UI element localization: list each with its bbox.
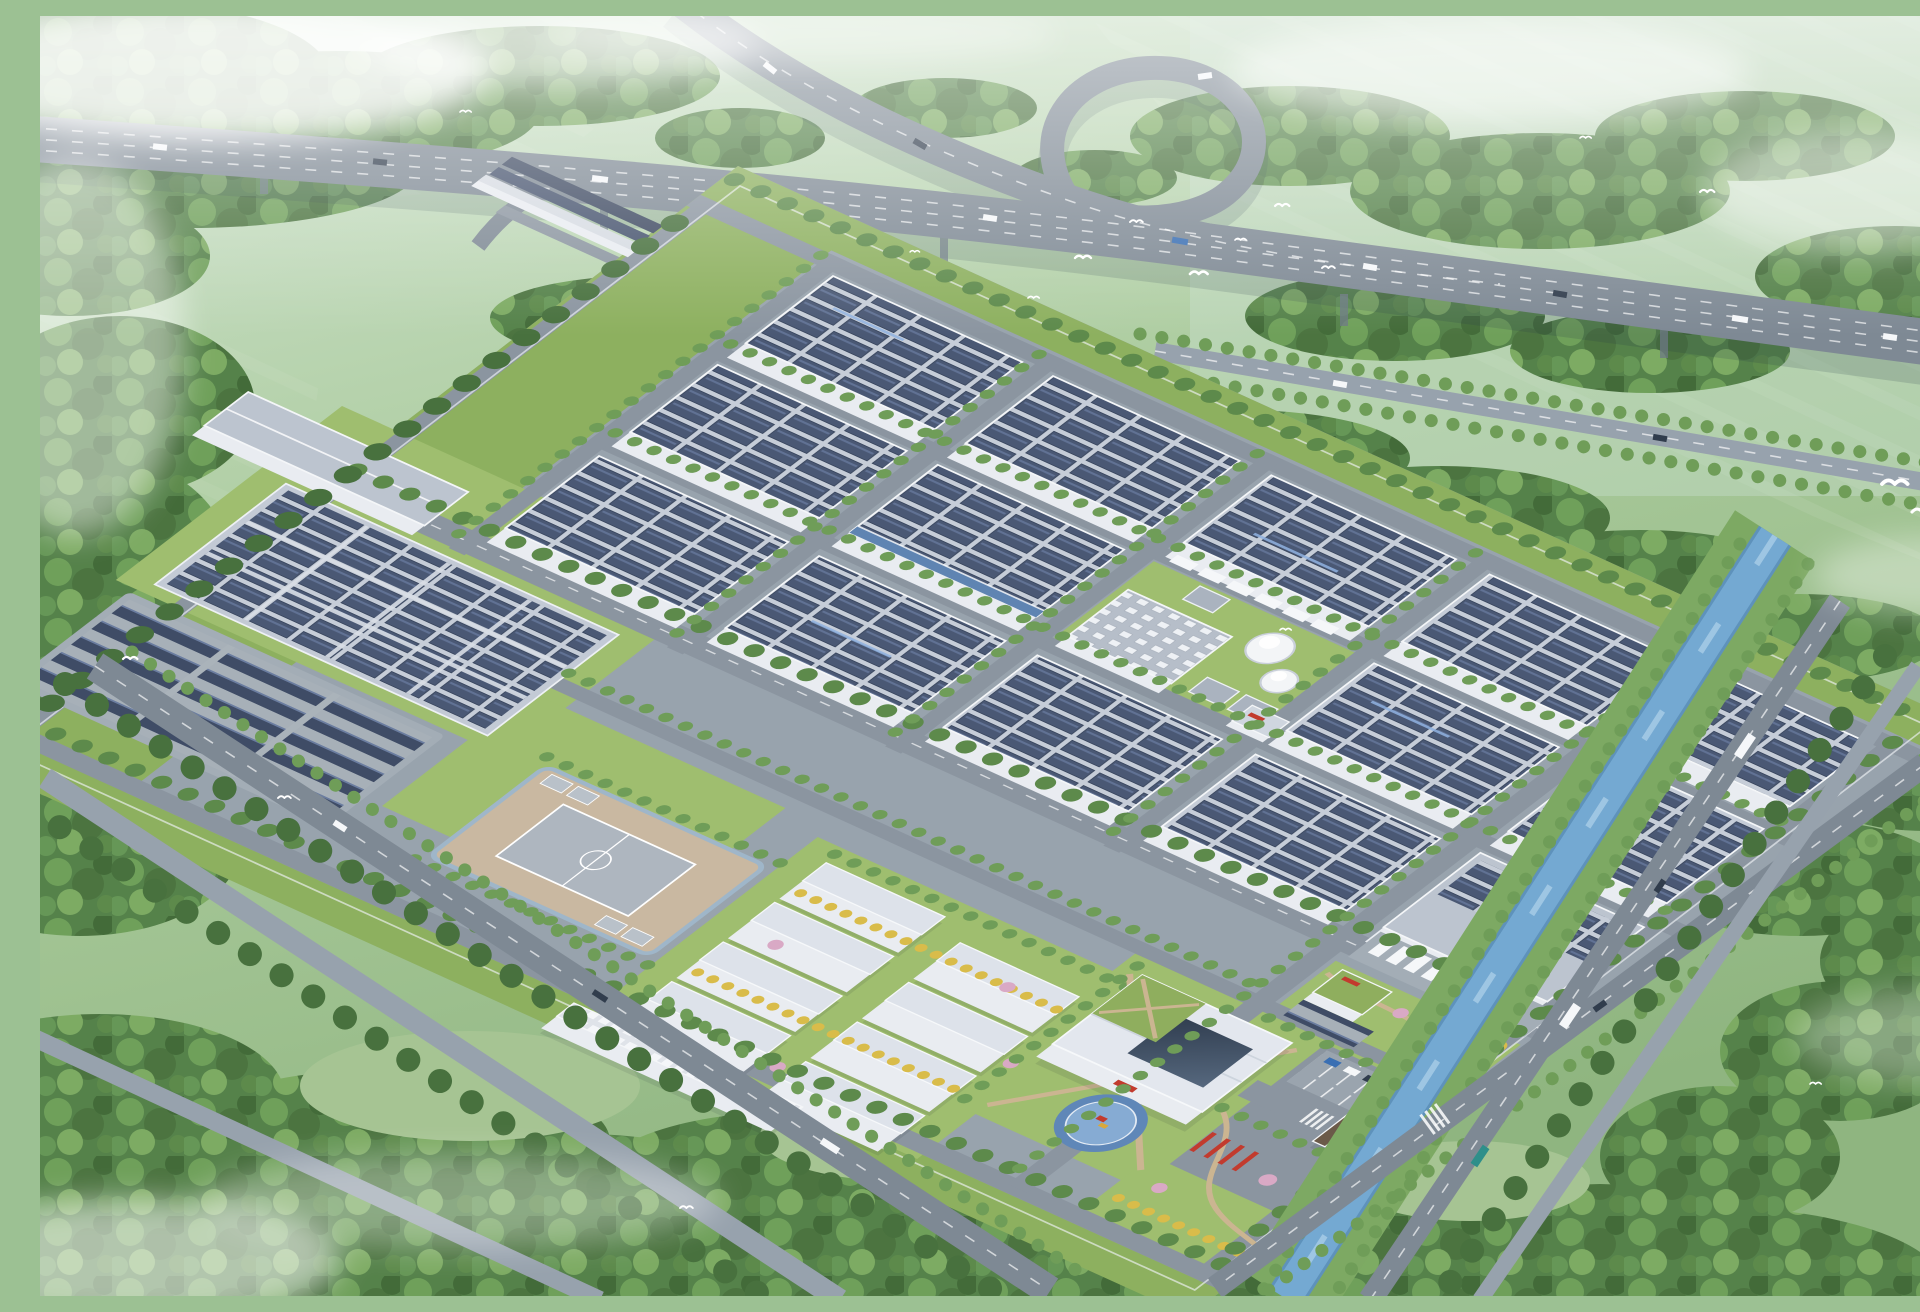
aerial-render-figure: Aerial rendering of a solar-roofed facto… [40,16,1920,1296]
aerial-render-scene [40,16,1920,1296]
